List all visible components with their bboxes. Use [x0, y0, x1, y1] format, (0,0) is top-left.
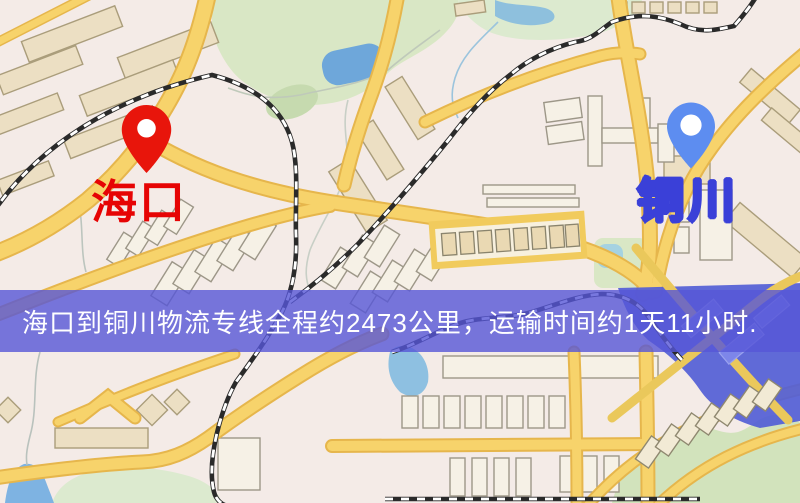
- destination-label: 铜川: [637, 177, 739, 224]
- destination-marker[interactable]: [667, 102, 715, 174]
- route-info-banner: 海口到铜川物流专线全程约2473公里，运输时间约1天11小时.: [0, 290, 800, 352]
- origin-label: 海口: [91, 179, 187, 225]
- map-canvas[interactable]: 海口 铜川 海口到铜川物流专线全程约2473公里，运输时间约1天11小时.: [0, 0, 800, 503]
- route-info-text: 海口到铜川物流专线全程约2473公里，运输时间约1天11小时.: [0, 303, 758, 340]
- map-background: [0, 0, 800, 503]
- origin-pin-icon: [121, 105, 172, 173]
- origin-marker[interactable]: [121, 105, 172, 178]
- destination-pin-icon: [667, 102, 715, 169]
